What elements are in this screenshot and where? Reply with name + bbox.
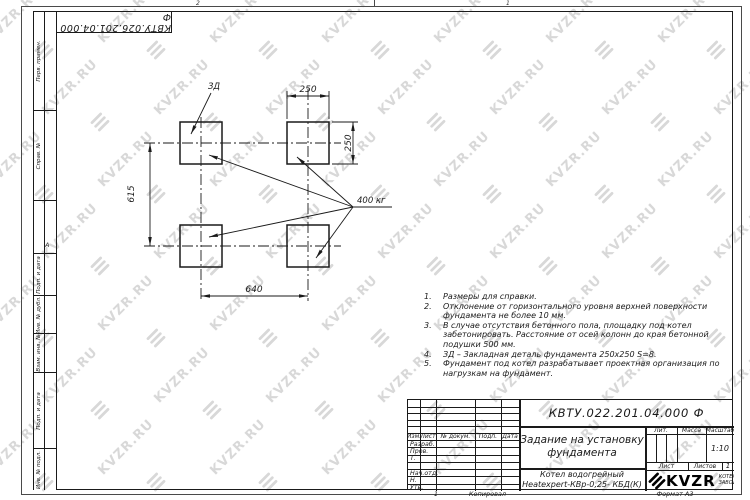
note-item: 1. Размеры для справки. — [424, 292, 724, 302]
note-text: ЗД – Закладная деталь фундамента 250х250… — [443, 350, 657, 360]
note-text: Фундамент под котел разрабатывает проект… — [443, 359, 720, 378]
tb-line — [656, 434, 657, 462]
tb-title-line2: фундамента — [547, 447, 617, 460]
tb-row-prov: Пров. — [408, 448, 438, 455]
kvzr-logo-subtext: КОТЕЛЬНЫЙ ЗАВОД РЭП — [719, 475, 734, 486]
note-text: В случае отсутствия бетонного пола, площ… — [443, 321, 709, 350]
tb-header-podp: Подп. — [475, 433, 501, 440]
footer-copied-label: Копировал — [450, 490, 525, 498]
tb-scale-value: 1:10 — [706, 434, 734, 462]
note-number: 4. — [424, 350, 443, 360]
tb-line — [408, 407, 519, 408]
tb-row-tkontr: Т. контр. — [408, 455, 438, 462]
tb-product: Котел водогрейный Heatexpert-КВр-0,25- К… — [519, 468, 645, 491]
kvzr-logo-sub2: ЗАВОД РЭП — [719, 481, 734, 487]
margin-cell-inv-podl: Инв. № подл. — [34, 449, 56, 491]
footer-format-label: Формат А3 — [640, 490, 710, 498]
note-number: 3. — [424, 321, 443, 350]
tb-sheets-label: Листов — [688, 462, 722, 470]
margin-label: Взам. инв. № — [36, 334, 42, 371]
margin-cell-sprav-no: Справ. № — [34, 111, 56, 201]
tb-row-razrab: Разраб. — [408, 441, 438, 448]
footer-number: 1 — [430, 490, 442, 498]
tb-line — [408, 413, 519, 414]
top-stamp-text: КВТУ.026.201.04.000 Ф — [57, 12, 171, 32]
margin-label: Справ. № — [36, 142, 42, 169]
top-stamp-box: КВТУ.026.201.04.000 Ф — [56, 11, 172, 33]
tb-lit-label: Лит. — [645, 426, 677, 434]
note-item: 5. Фундамент под котел разрабатывает про… — [424, 359, 724, 378]
margin-label: Инв. № подл. — [36, 451, 42, 489]
kvzr-logo-icon — [648, 472, 666, 490]
margin-label: Перв. примен. — [36, 40, 42, 81]
tb-doc-number: КВТУ.022.201.04.000 Ф — [519, 400, 734, 426]
title-block: Изм. Лист № докум. Подп. Дата Разраб. Пр… — [407, 399, 733, 490]
margin-label: Инв. № дубл. — [36, 296, 42, 334]
tb-line — [408, 426, 519, 427]
note-text: Отклонение от горизонтального уровня вер… — [443, 302, 707, 321]
note-number: 5. — [424, 359, 443, 378]
margin-cell-podp-data-2: Подп. и дата — [34, 373, 56, 449]
tb-mass-label: Масса — [677, 426, 706, 434]
tb-title: Задание на установку фундамента — [519, 426, 645, 468]
margin-cell-vzam-inv: Взам. инв. № — [34, 334, 56, 373]
tb-row-nkontr: Н. контр. — [408, 477, 438, 484]
tb-header-izm: Изм. — [408, 433, 420, 440]
zone-divider-tick — [374, 0, 375, 6]
tb-header-dokum: № докум. — [436, 433, 475, 440]
note-number: 2. — [424, 302, 443, 321]
tb-product-line2: Heatexpert-КВр-0,25- КБД(К) — [522, 480, 642, 490]
tb-header-list: Лист — [420, 433, 436, 440]
note-item: 2. Отклонение от горизонтального уровня … — [424, 302, 724, 321]
tb-row-utv: Утв. — [408, 484, 438, 491]
drawing-sheet: KVZR.RUKVZR.RUKVZR.RUKVZR.RUKVZR.RUKVZR.… — [0, 0, 750, 500]
note-number: 1. — [424, 292, 443, 302]
tb-line — [666, 434, 667, 462]
kvzr-logo-text: KVZR — [666, 472, 716, 490]
margin-label: Подп. и дата — [36, 256, 42, 293]
margin-cell-podp-data-1: Подп. и дата — [34, 254, 56, 296]
notes-block: 1. Размеры для справки. 2. Отклонение от… — [424, 292, 724, 378]
margin-label: Подп. и дата — [36, 392, 42, 429]
margin-cell-perv-primen: Перв. примен. — [34, 12, 56, 111]
note-text: Размеры для справки. — [443, 292, 537, 302]
zone-number: 2 — [196, 0, 200, 7]
tb-row-nachotd: Нач.отд. — [408, 470, 438, 477]
tb-product-line1: Котел водогрейный — [540, 470, 624, 480]
tb-sheets-value: 1 — [722, 462, 734, 470]
tb-header-data: Дата — [501, 433, 519, 440]
zone-number: 1 — [506, 0, 510, 7]
margin-strip: Перв. примен. Справ. № Подп. и дата Инв.… — [33, 11, 56, 490]
tb-sheet-label: Лист — [645, 462, 688, 470]
tb-scale-label: Масштаб — [706, 426, 734, 434]
tb-title-line1: Задание на установку — [520, 434, 644, 447]
note-item: 3. В случае отсутствия бетонного пола, п… — [424, 321, 724, 350]
note-item: 4. ЗД – Закладная деталь фундамента 250х… — [424, 350, 724, 360]
margin-cell-empty — [34, 201, 56, 254]
margin-cell-inv-dubl: Инв. № дубл. — [34, 296, 56, 334]
tb-line — [408, 420, 519, 421]
tb-logo-area: KVZR КОТЕЛЬНЫЙ ЗАВОД РЭП — [645, 470, 734, 491]
